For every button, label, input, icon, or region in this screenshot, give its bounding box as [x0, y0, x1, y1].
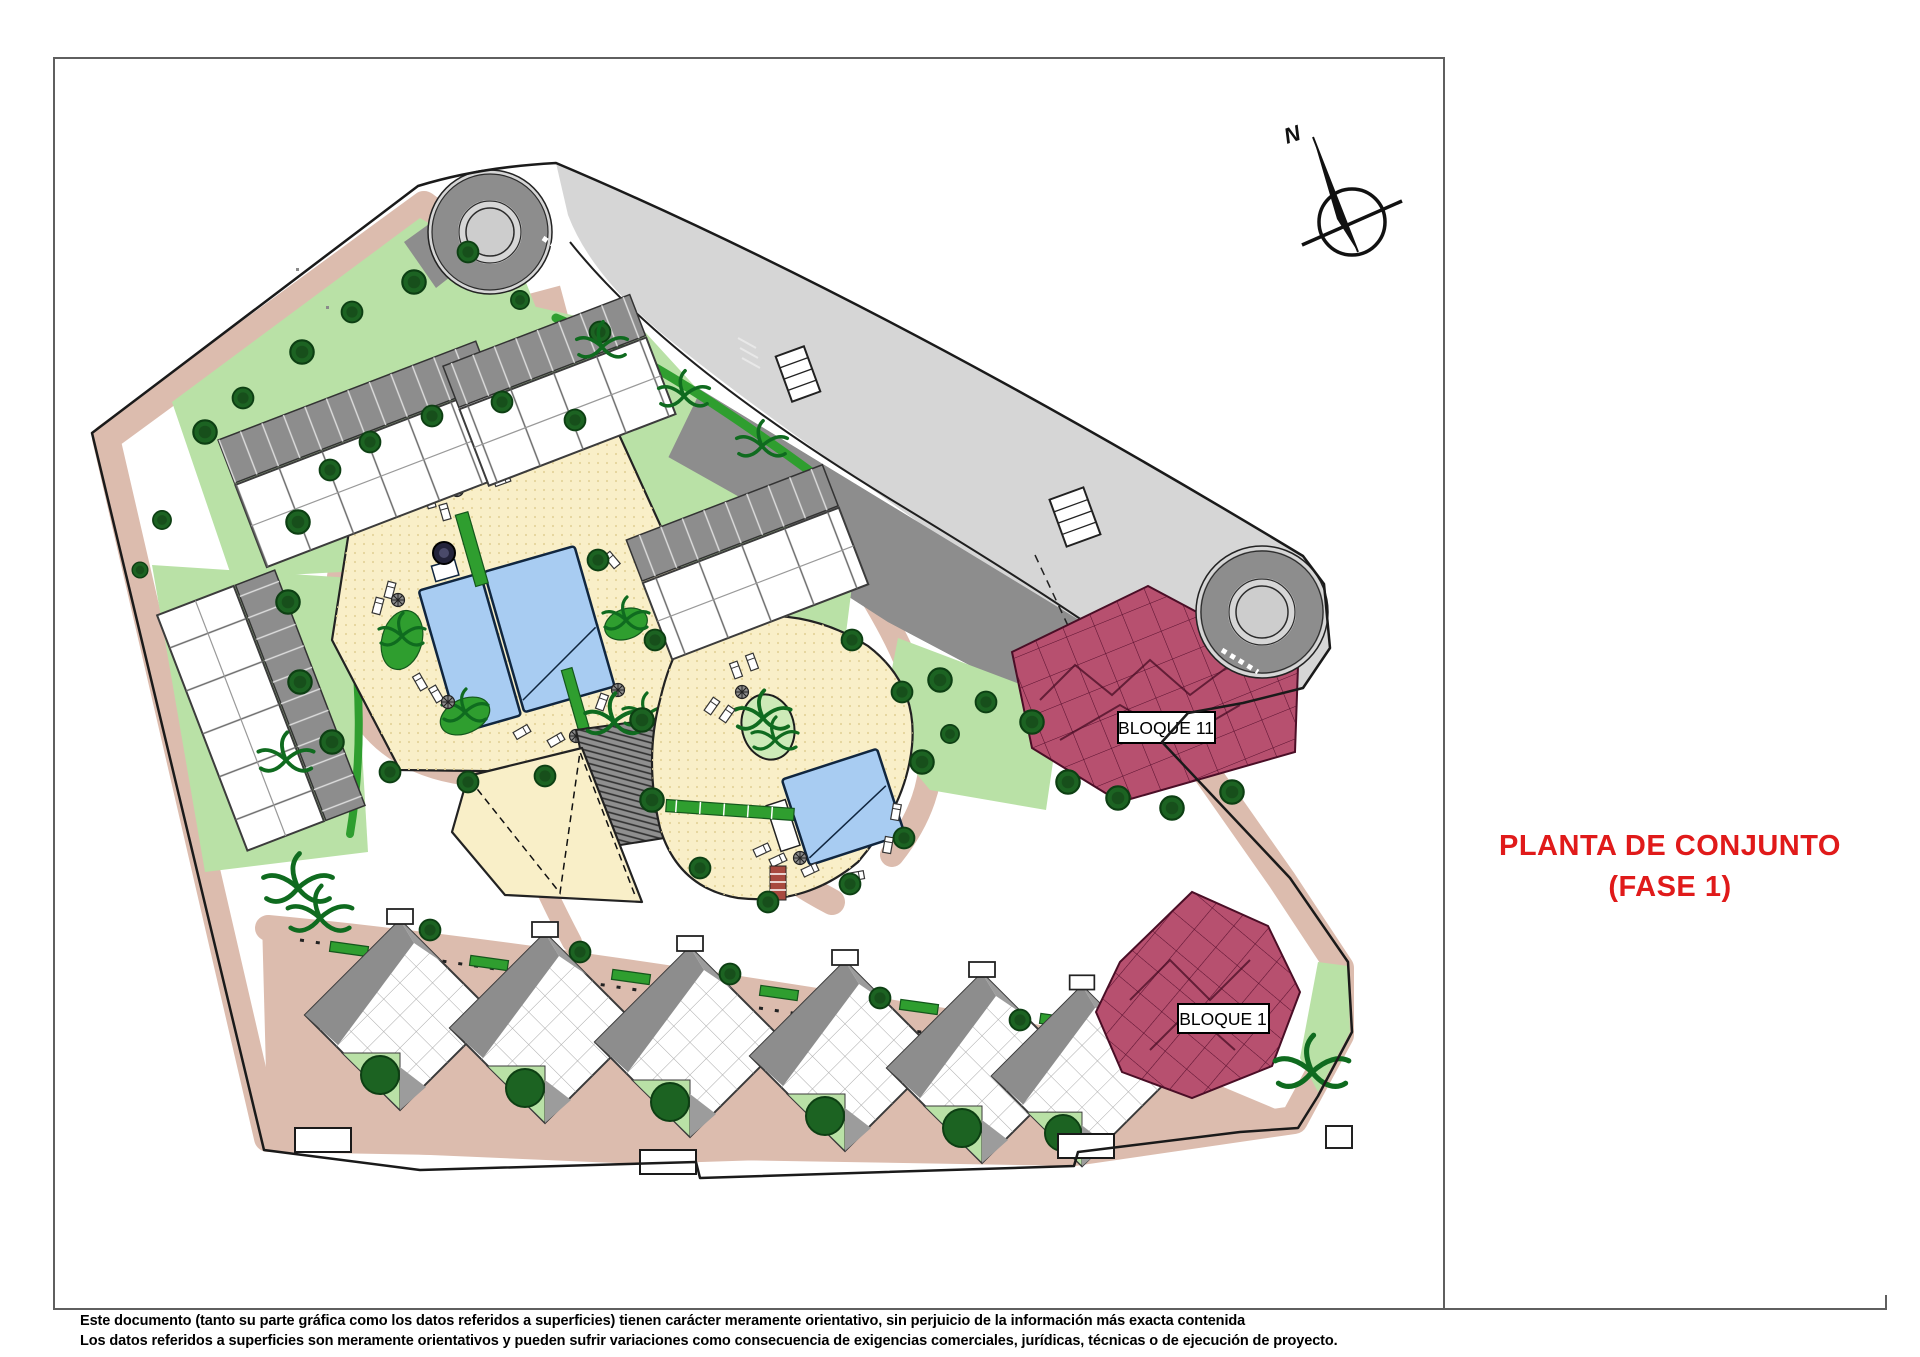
bloque-1-label-text: BLOQUE 1 [1179, 1009, 1267, 1029]
plan-title: PLANTA DE CONJUNTO (FASE 1) [1458, 826, 1882, 908]
plan-title-line2: (FASE 1) [1458, 867, 1882, 908]
disclaimer-line2: Los datos referidos a superficies son me… [80, 1331, 1338, 1351]
north-arrow: N [1281, 120, 1402, 255]
disclaimer-line1: Este documento (tanto su parte gráfica c… [80, 1311, 1338, 1331]
roundabout-east [1196, 546, 1328, 678]
north-label: N [1281, 120, 1305, 149]
bloque-11-label-text: BLOQUE 11 [1118, 718, 1214, 738]
disclaimer: Este documento (tanto su parte gráfica c… [80, 1311, 1338, 1351]
utility-cabin [1326, 1126, 1352, 1148]
plan-title-line1: PLANTA DE CONJUNTO [1458, 826, 1882, 867]
bloque-1-label: BLOQUE 1 [1178, 1004, 1269, 1033]
site-plan: BLOQUE 11 BLOQUE 1 [0, 0, 1920, 1357]
sheet: BLOQUE 11 BLOQUE 1 [0, 0, 1920, 1357]
roundabout-north [428, 170, 552, 294]
